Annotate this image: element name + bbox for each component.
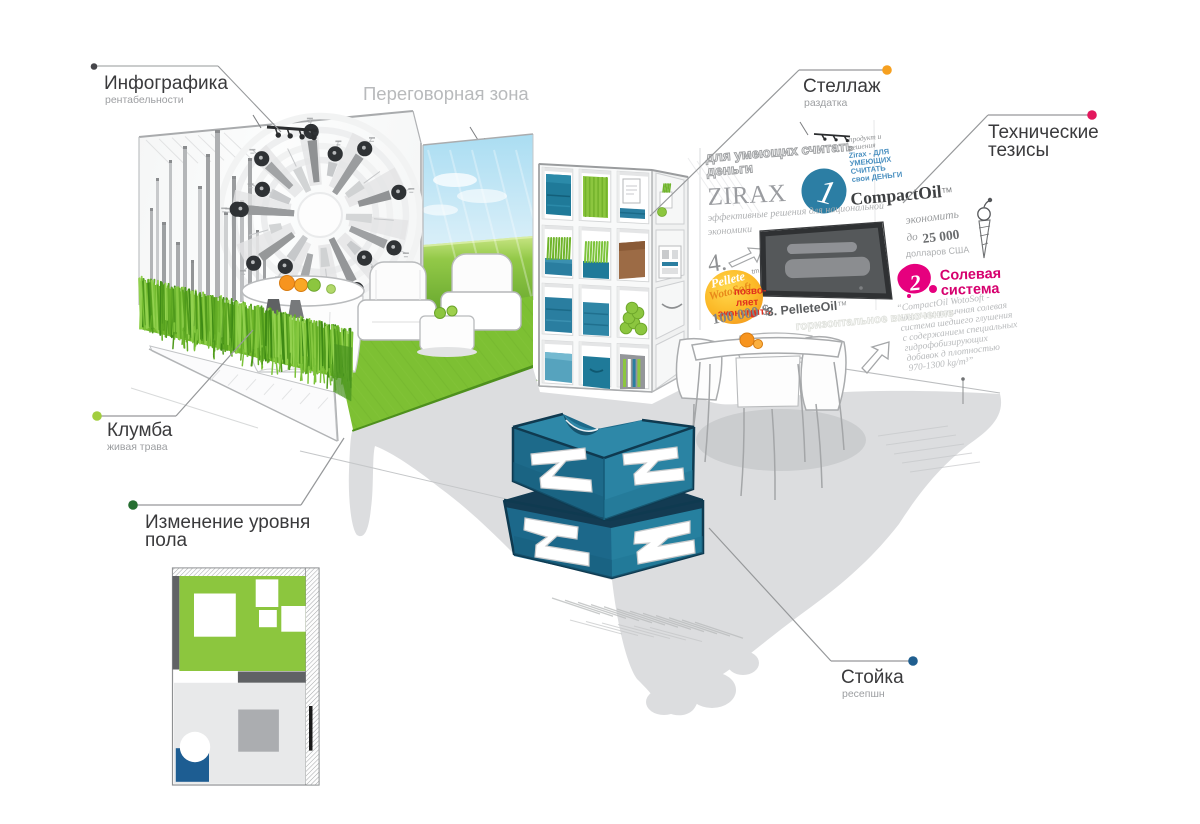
svg-text:тезисы: тезисы [988,140,1049,161]
svg-text:до: до [906,231,919,244]
svg-text:Стеллаж: Стеллаж [803,76,881,97]
svg-text:Клумба: Клумба [107,420,173,441]
svg-text:позво-: позво- [734,285,767,298]
svg-text:пола: пола [145,530,188,551]
svg-text:ZIRAX: ZIRAX [707,180,787,211]
svg-text:TM: TM [838,301,847,308]
svg-text:tm: tm [751,268,760,276]
svg-text:рентабельности: рентабельности [105,94,184,106]
svg-text:ресепшн: ресепшн [842,688,885,700]
svg-text:живая трава: живая трава [107,441,168,453]
svg-text:TM: TM [942,187,953,195]
svg-text:Инфографика: Инфографика [104,73,228,94]
svg-text:Переговорная зона: Переговорная зона [363,83,529,104]
svg-text:раздатка: раздатка [804,97,848,109]
svg-text:Стойка: Стойка [841,667,904,688]
